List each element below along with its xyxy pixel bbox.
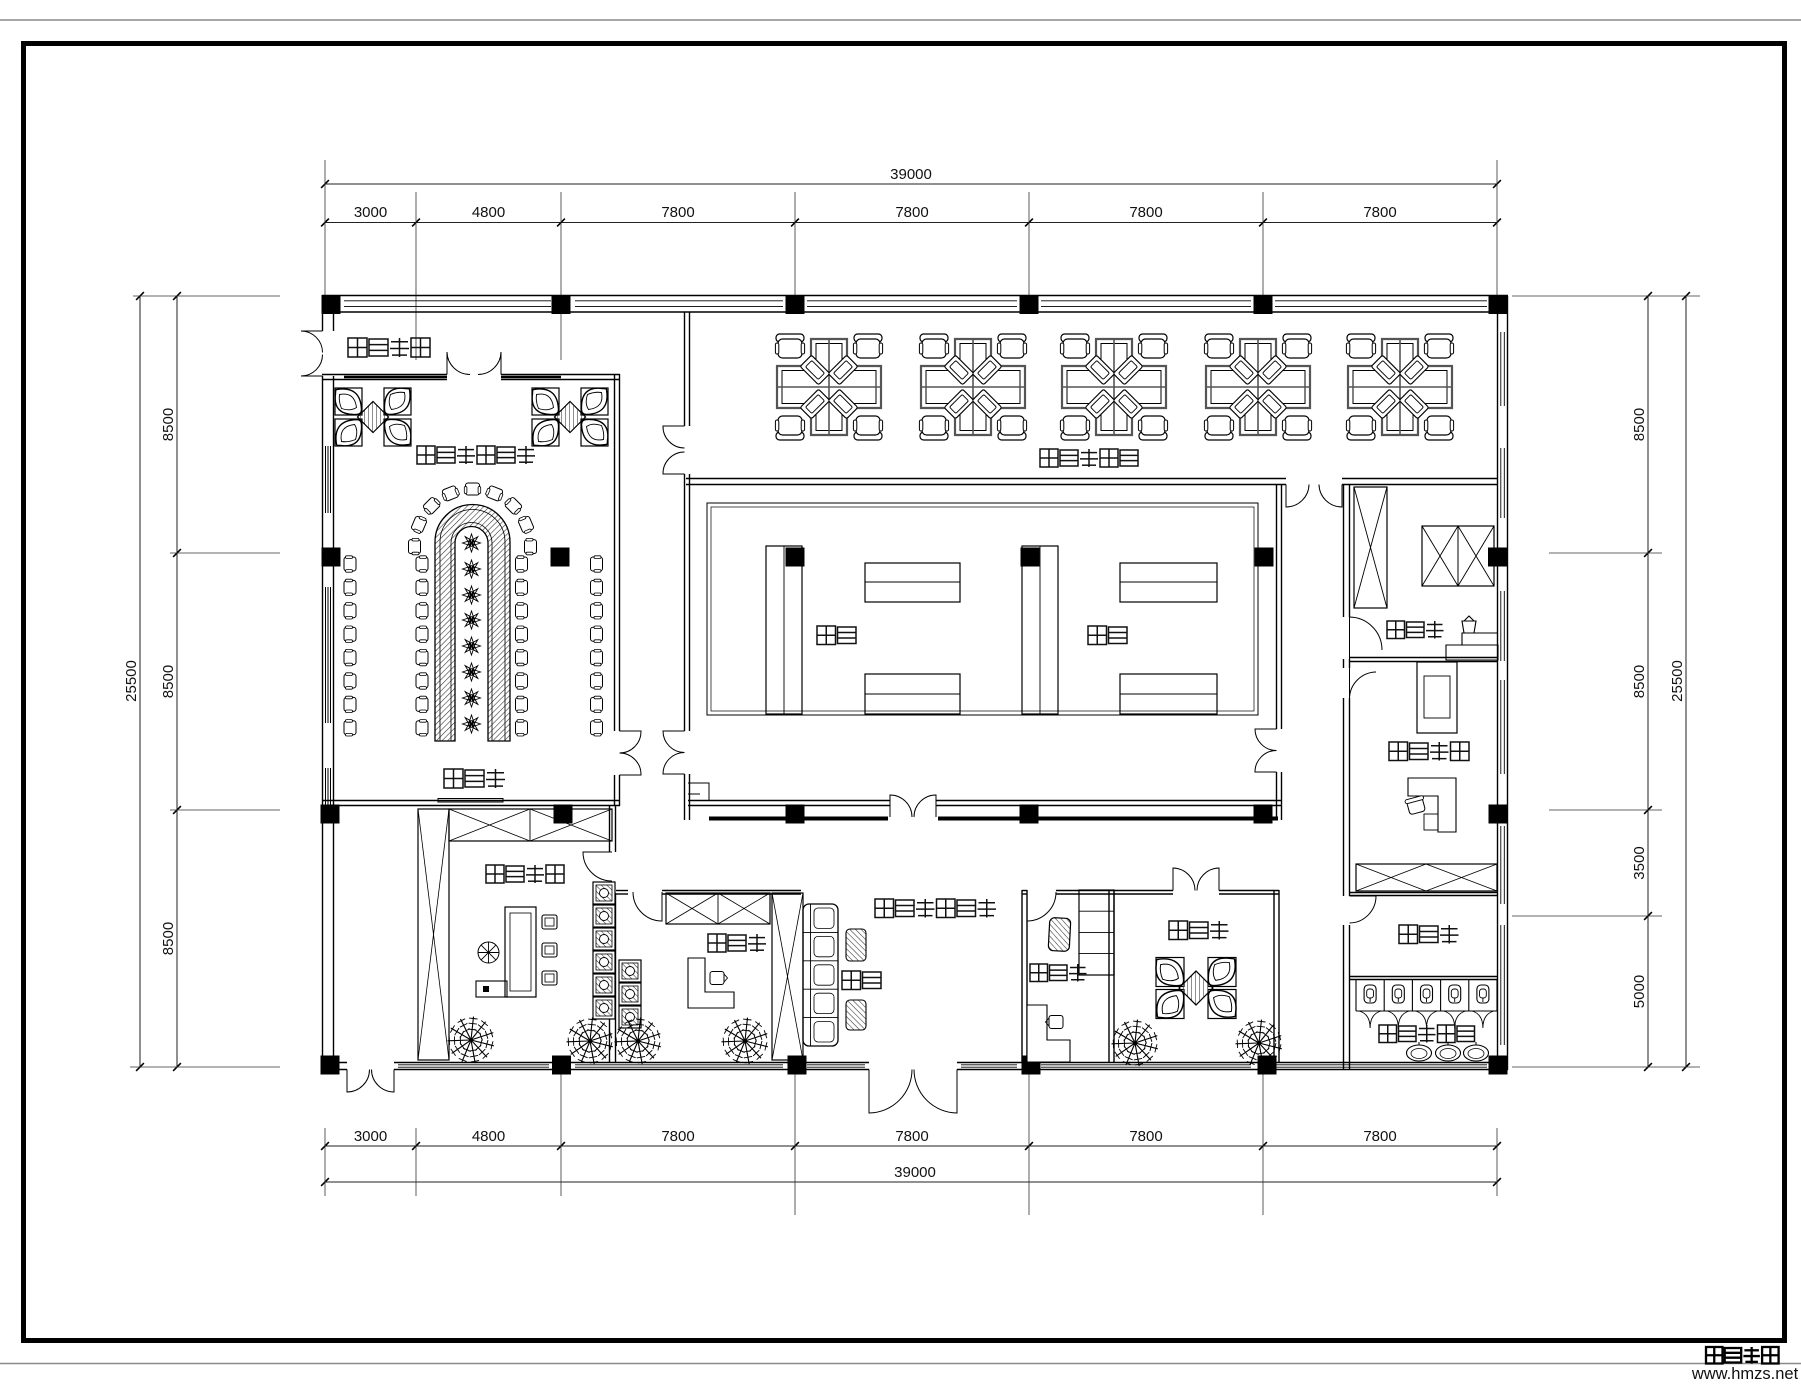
svg-text:8500: 8500 [160, 922, 177, 955]
svg-text:7800: 7800 [661, 1128, 694, 1145]
svg-text:8500: 8500 [160, 408, 177, 441]
svg-text:7800: 7800 [661, 204, 694, 221]
svg-text:3000: 3000 [354, 1128, 387, 1145]
svg-text:25500: 25500 [1669, 660, 1686, 702]
svg-text:8500: 8500 [160, 665, 177, 698]
svg-text:7800: 7800 [1363, 204, 1396, 221]
svg-text:7800: 7800 [895, 1128, 928, 1145]
svg-text:7800: 7800 [895, 204, 928, 221]
svg-text:39000: 39000 [890, 166, 932, 183]
svg-text:39000: 39000 [894, 1164, 936, 1181]
svg-text:www.hmzs.net: www.hmzs.net [1691, 1365, 1799, 1383]
svg-text:7800: 7800 [1363, 1128, 1396, 1145]
svg-text:4800: 4800 [472, 204, 505, 221]
svg-text:8500: 8500 [1631, 408, 1648, 441]
svg-text:3500: 3500 [1631, 846, 1648, 879]
svg-text:25500: 25500 [123, 660, 140, 702]
svg-text:7800: 7800 [1129, 204, 1162, 221]
svg-text:7800: 7800 [1129, 1128, 1162, 1145]
svg-text:5000: 5000 [1631, 975, 1648, 1008]
svg-text:8500: 8500 [1631, 665, 1648, 698]
svg-text:3000: 3000 [354, 204, 387, 221]
svg-text:4800: 4800 [472, 1128, 505, 1145]
